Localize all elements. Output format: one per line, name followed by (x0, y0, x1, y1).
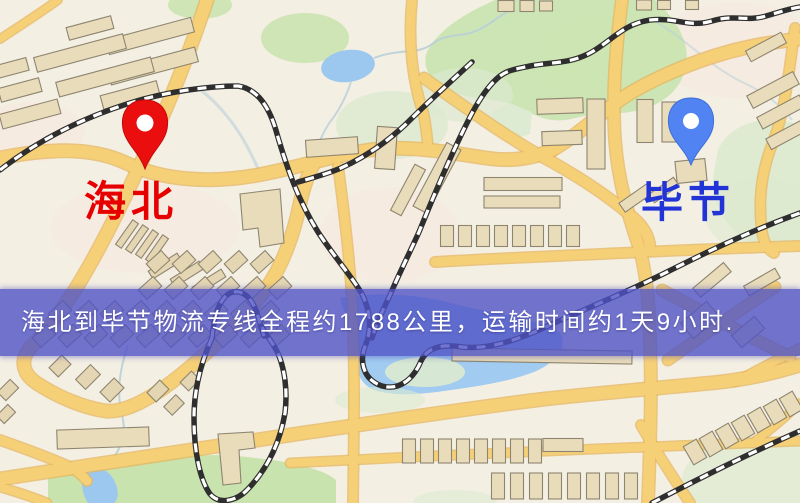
logistics-route-map[interactable]: 海北 毕节 海北到毕节物流专线全程约1788公里，运输时间约1天9小时. (0, 0, 800, 503)
building (531, 226, 544, 247)
building (484, 178, 562, 191)
building (305, 137, 358, 158)
building (511, 439, 524, 463)
building (421, 439, 434, 463)
building (625, 473, 638, 499)
building (441, 226, 454, 247)
destination-city-label: 毕节 (641, 182, 735, 224)
building (459, 226, 472, 247)
building (457, 439, 470, 463)
building (492, 473, 505, 499)
building (493, 439, 506, 463)
building (540, 1, 553, 11)
building (658, 1, 671, 10)
building (477, 226, 490, 247)
building (587, 473, 600, 499)
origin-city-label: 海北 (84, 181, 178, 223)
building (529, 439, 542, 463)
building (484, 196, 560, 208)
building (511, 473, 524, 499)
building (542, 130, 582, 145)
map-generated-layers (0, 0, 800, 503)
building (520, 1, 534, 12)
building (543, 439, 583, 452)
building (637, 100, 653, 143)
building (587, 99, 605, 169)
building (537, 98, 583, 115)
building (57, 427, 150, 449)
route-info-text: 海北到毕节物流专线全程约1788公里，运输时间约1天9小时. (0, 311, 735, 335)
building (475, 439, 488, 463)
building (549, 473, 562, 499)
building (530, 473, 543, 499)
building (686, 1, 699, 10)
building (495, 226, 508, 247)
building (567, 226, 580, 247)
red-pin-hole (137, 115, 154, 132)
blue-pin-hole (683, 113, 699, 129)
building (568, 473, 581, 499)
building (498, 1, 514, 12)
building (513, 226, 526, 247)
building (606, 473, 619, 499)
building (403, 439, 416, 463)
map-canvas[interactable] (0, 0, 800, 503)
building (439, 439, 452, 463)
route-info-banner: 海北到毕节物流专线全程约1788公里，运输时间约1天9小时. (0, 289, 800, 356)
building (637, 0, 652, 10)
building (549, 226, 562, 247)
